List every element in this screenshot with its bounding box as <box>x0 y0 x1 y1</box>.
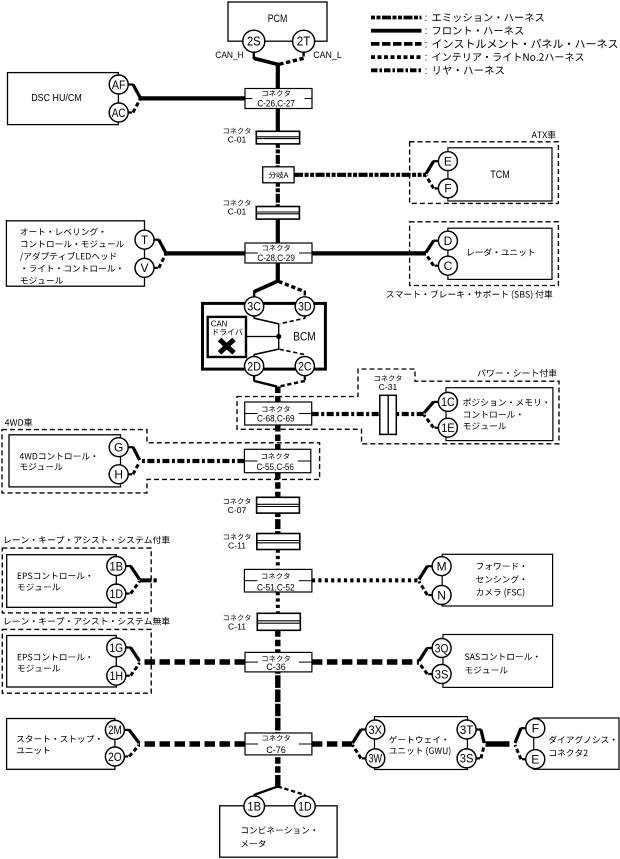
svg-text::: : <box>425 25 428 37</box>
svg-text:C-28,C-29: C-28,C-29 <box>257 253 295 263</box>
svg-text:H: H <box>114 468 123 482</box>
svg-text:C-51,C-52: C-51,C-52 <box>257 583 295 593</box>
svg-text:3S: 3S <box>460 752 474 766</box>
svg-text:2C: 2C <box>298 359 312 373</box>
svg-text:C-01: C-01 <box>228 135 247 145</box>
svg-text:C-76: C-76 <box>266 745 286 755</box>
svg-text::: : <box>425 65 428 77</box>
svg-text:3T: 3T <box>460 723 474 737</box>
svg-text:C-31: C-31 <box>379 382 398 392</box>
svg-text:C-36: C-36 <box>266 662 286 672</box>
svg-text:V: V <box>140 261 148 275</box>
svg-text:3X: 3X <box>369 723 383 737</box>
svg-text:1B: 1B <box>247 800 261 814</box>
svg-text:C-68,C-69: C-68,C-69 <box>257 414 295 424</box>
svg-text:BCM: BCM <box>293 330 315 344</box>
svg-text:TCM: TCM <box>490 169 510 181</box>
svg-text:1C: 1C <box>441 395 455 409</box>
svg-text:C-11: C-11 <box>228 541 246 551</box>
svg-text:1D: 1D <box>110 587 124 601</box>
svg-text:N: N <box>437 588 446 602</box>
svg-text:C-01: C-01 <box>228 207 247 217</box>
svg-text:C-07: C-07 <box>228 505 247 515</box>
svg-text:C: C <box>444 259 453 273</box>
svg-text:2O: 2O <box>108 750 122 764</box>
svg-text:1G: 1G <box>110 641 124 655</box>
svg-text:CAN: CAN <box>211 319 228 328</box>
svg-text:F: F <box>444 182 451 196</box>
svg-text:CAN_L: CAN_L <box>313 50 342 61</box>
svg-text:T: T <box>141 233 149 247</box>
svg-text:PCM: PCM <box>268 13 288 25</box>
svg-text:2D: 2D <box>247 359 261 373</box>
svg-text:1E: 1E <box>441 421 455 435</box>
svg-text:AC: AC <box>112 106 126 120</box>
svg-text:C-55,C-56: C-55,C-56 <box>256 462 294 472</box>
svg-text:1B: 1B <box>110 559 124 573</box>
svg-text:E: E <box>531 753 539 767</box>
svg-text:M: M <box>437 560 447 574</box>
svg-text:AF: AF <box>112 78 126 92</box>
svg-text:D: D <box>444 234 453 248</box>
svg-text:C-26,C-27: C-26,C-27 <box>257 99 295 109</box>
svg-text:C-11: C-11 <box>228 622 246 632</box>
svg-text:2M: 2M <box>108 723 122 737</box>
svg-text:3W: 3W <box>369 752 383 766</box>
svg-text::: : <box>425 52 428 64</box>
svg-text:3D: 3D <box>298 300 312 314</box>
svg-text:3Q: 3Q <box>435 641 449 655</box>
svg-text:2T: 2T <box>297 35 311 49</box>
svg-text:3C: 3C <box>247 300 261 314</box>
svg-text:1D: 1D <box>298 800 312 814</box>
svg-text:CAN_H: CAN_H <box>215 50 244 61</box>
svg-text:G: G <box>114 441 123 455</box>
svg-text:3S: 3S <box>435 667 449 681</box>
svg-text::: : <box>425 38 428 50</box>
svg-text:1H: 1H <box>110 669 124 683</box>
svg-text::: : <box>425 12 428 24</box>
svg-text:F: F <box>532 722 539 736</box>
svg-text:E: E <box>444 155 452 169</box>
svg-text:2S: 2S <box>247 35 261 49</box>
svg-text:DSC HU/CM: DSC HU/CM <box>31 93 82 104</box>
